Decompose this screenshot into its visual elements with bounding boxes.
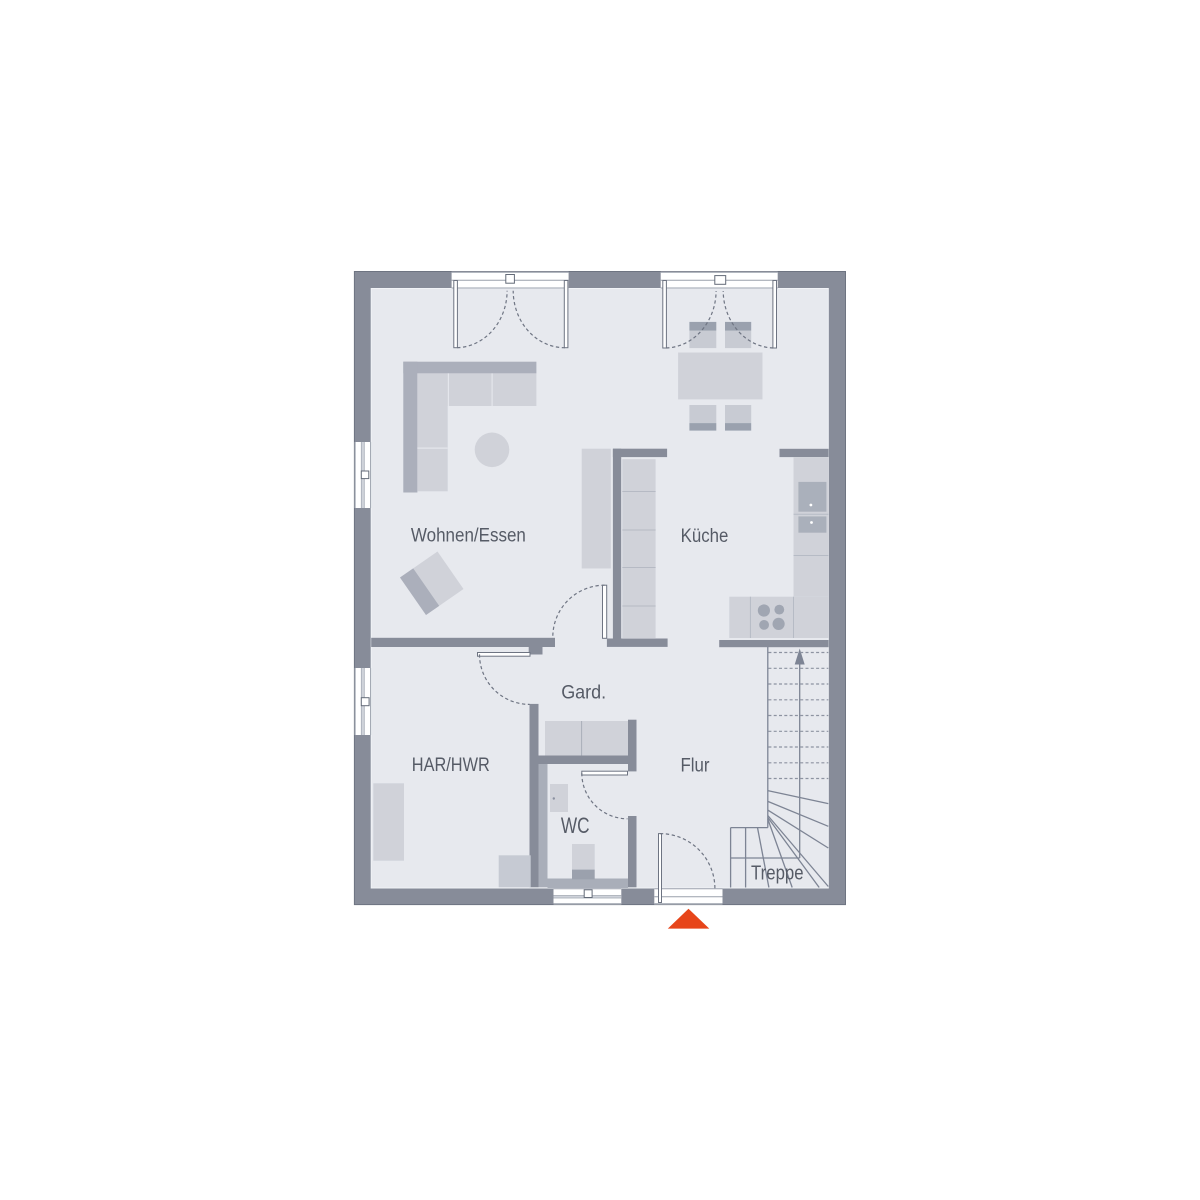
svg-text:HAR/HWR: HAR/HWR bbox=[412, 754, 490, 776]
svg-text:Küche: Küche bbox=[681, 525, 729, 547]
svg-text:WC: WC bbox=[561, 813, 590, 838]
svg-text:Wohnen/Essen: Wohnen/Essen bbox=[411, 524, 526, 546]
svg-text:Flur: Flur bbox=[681, 754, 710, 776]
svg-text:Treppe: Treppe bbox=[751, 861, 804, 884]
svg-text:Gard.: Gard. bbox=[561, 682, 606, 704]
